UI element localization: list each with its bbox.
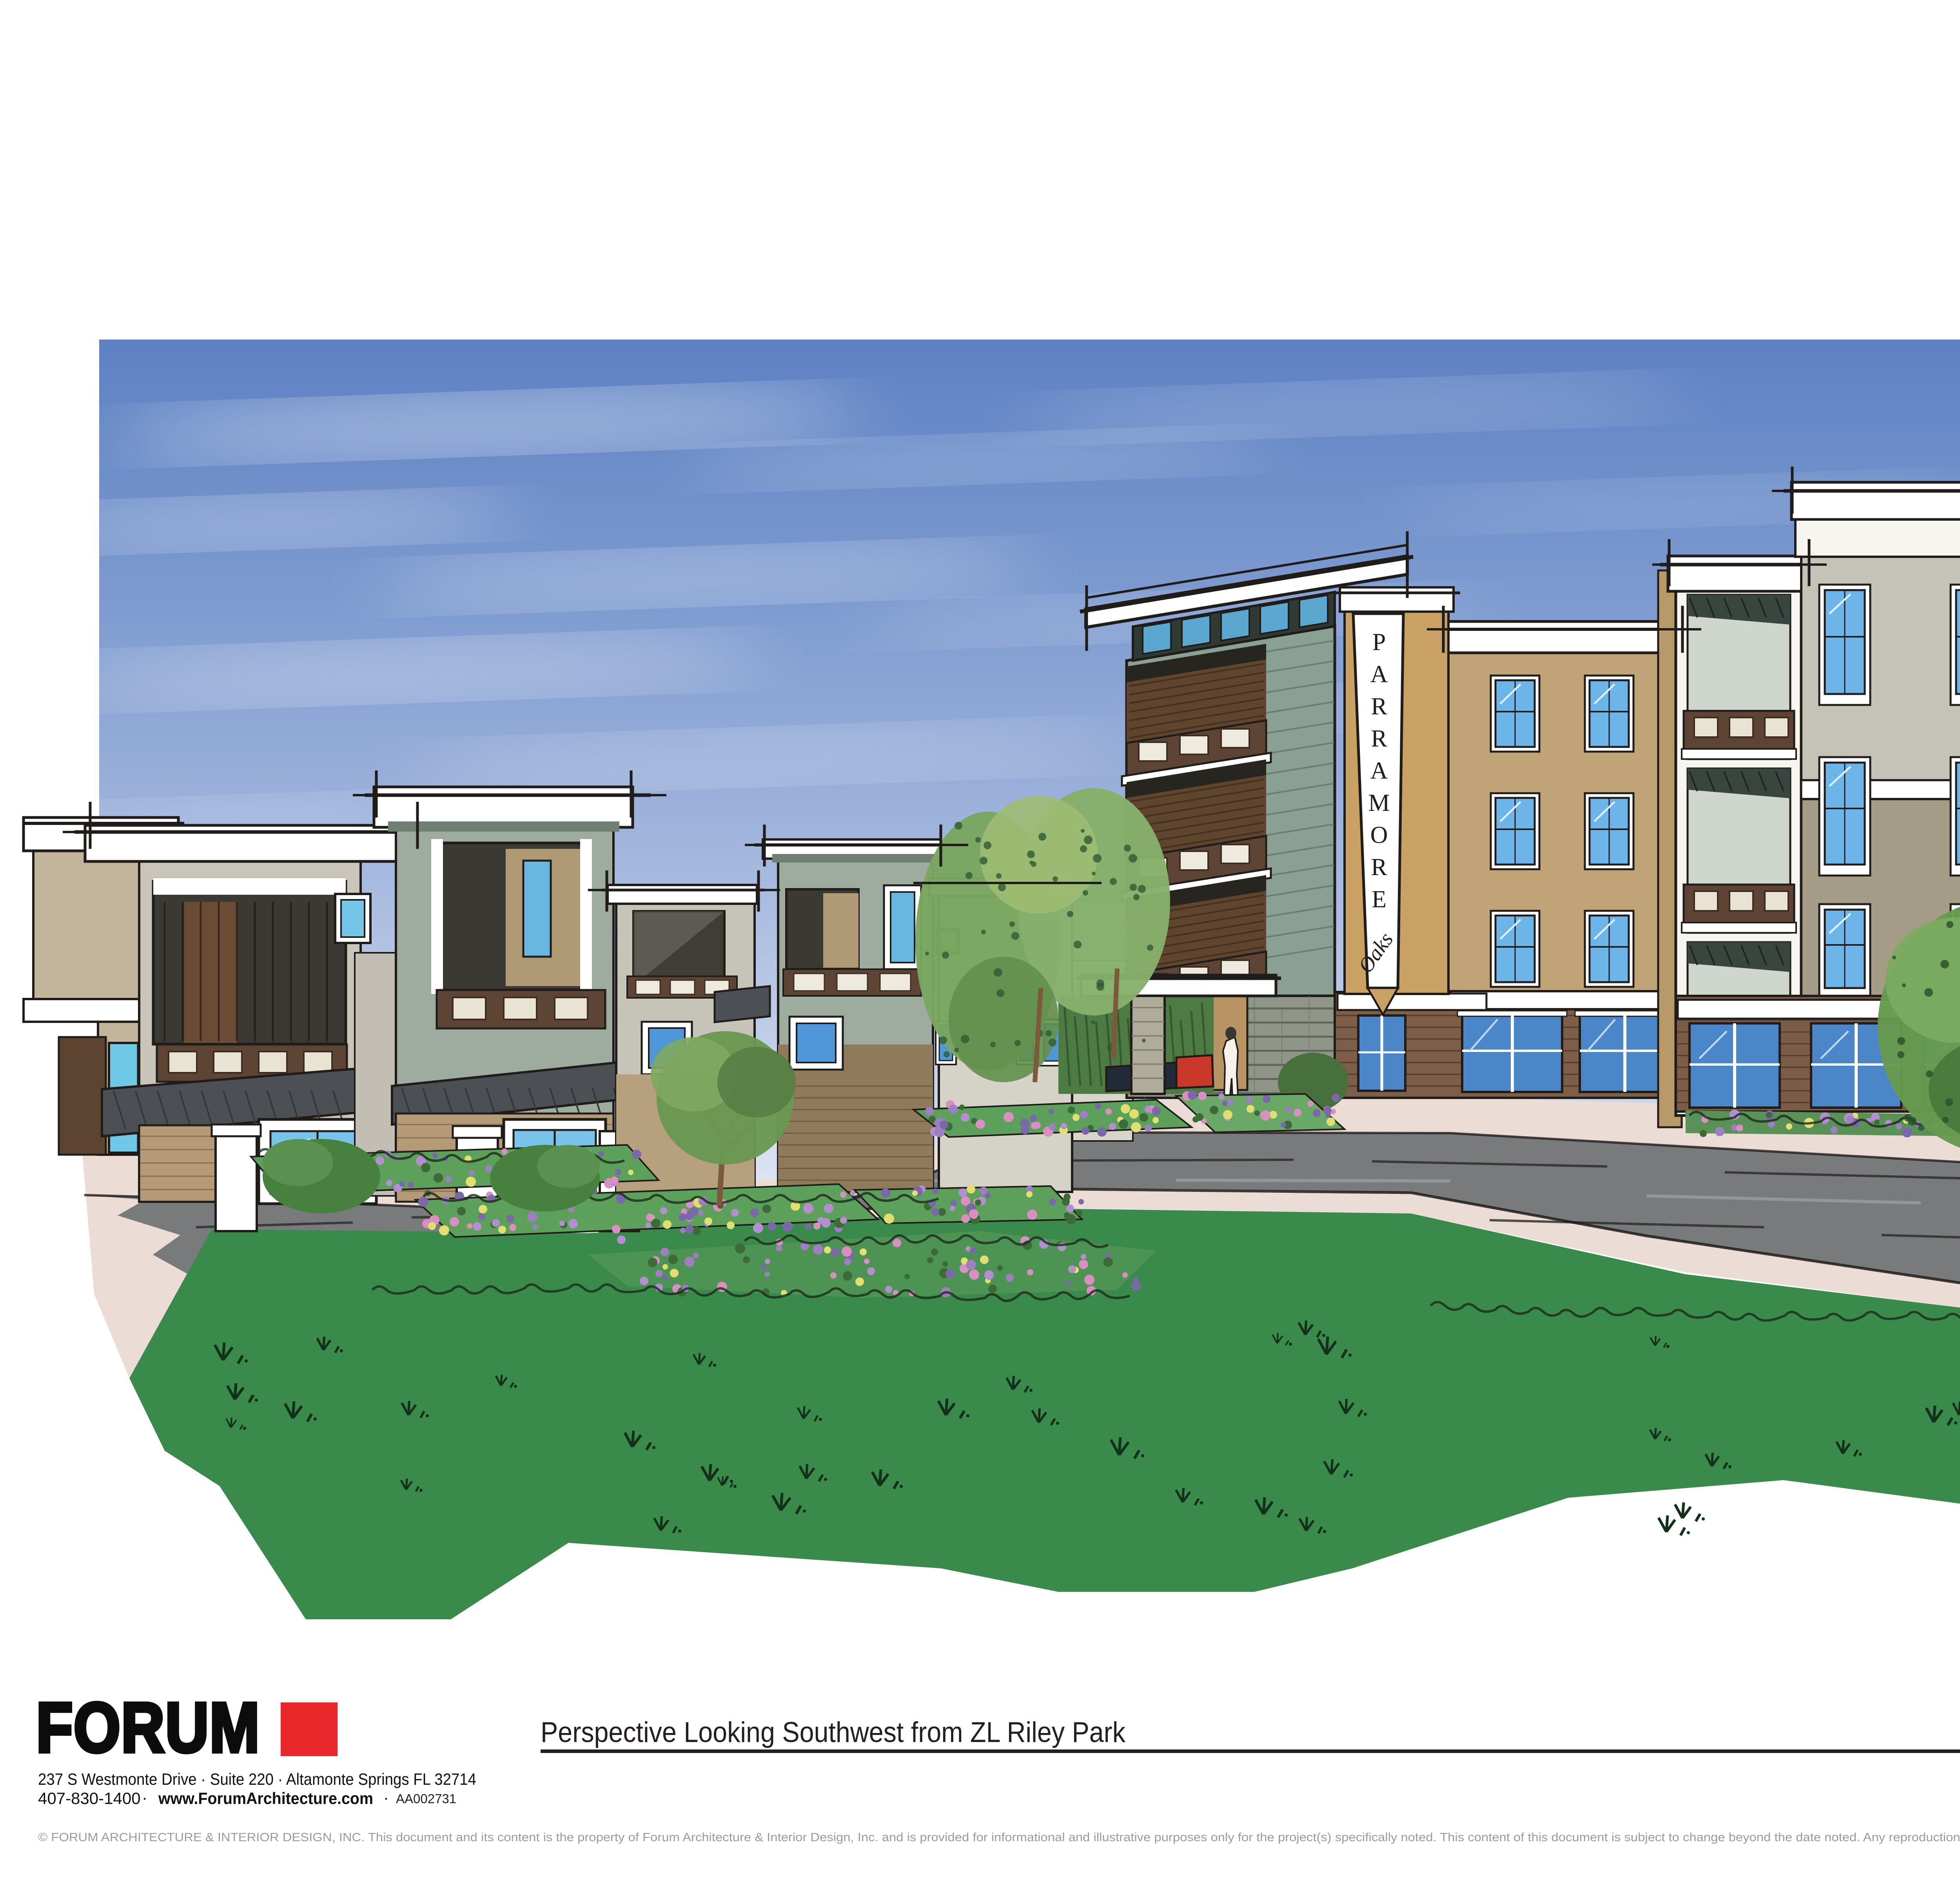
svg-text:O: O bbox=[1370, 822, 1388, 848]
svg-text:237 S Westmonte Drive · Suite: 237 S Westmonte Drive · Suite 220 · Alta… bbox=[38, 1770, 476, 1788]
svg-text:© FORUM ARCHITECTURE & INTERIO: © FORUM ARCHITECTURE & INTERIOR DESIGN, … bbox=[38, 1830, 1960, 1844]
svg-text:R: R bbox=[1371, 725, 1387, 752]
svg-text:·: · bbox=[142, 1788, 147, 1807]
svg-text:R: R bbox=[1371, 854, 1387, 881]
svg-text:E: E bbox=[1372, 886, 1387, 913]
svg-text:FORUM: FORUM bbox=[36, 1688, 260, 1767]
svg-text:AA002731: AA002731 bbox=[396, 1791, 456, 1806]
svg-text:A: A bbox=[1370, 758, 1388, 784]
svg-text:M: M bbox=[1368, 790, 1390, 816]
svg-text:R: R bbox=[1371, 693, 1387, 720]
svg-text:Perspective Looking Southwest: Perspective Looking Southwest from ZL Ri… bbox=[541, 1717, 1125, 1748]
svg-text:www.ForumArchitecture.com: www.ForumArchitecture.com bbox=[158, 1789, 373, 1808]
svg-text:A: A bbox=[1370, 661, 1388, 688]
svg-text:P: P bbox=[1372, 629, 1386, 656]
svg-text:407-830-1400: 407-830-1400 bbox=[38, 1789, 141, 1808]
svg-text:·: · bbox=[383, 1788, 389, 1807]
